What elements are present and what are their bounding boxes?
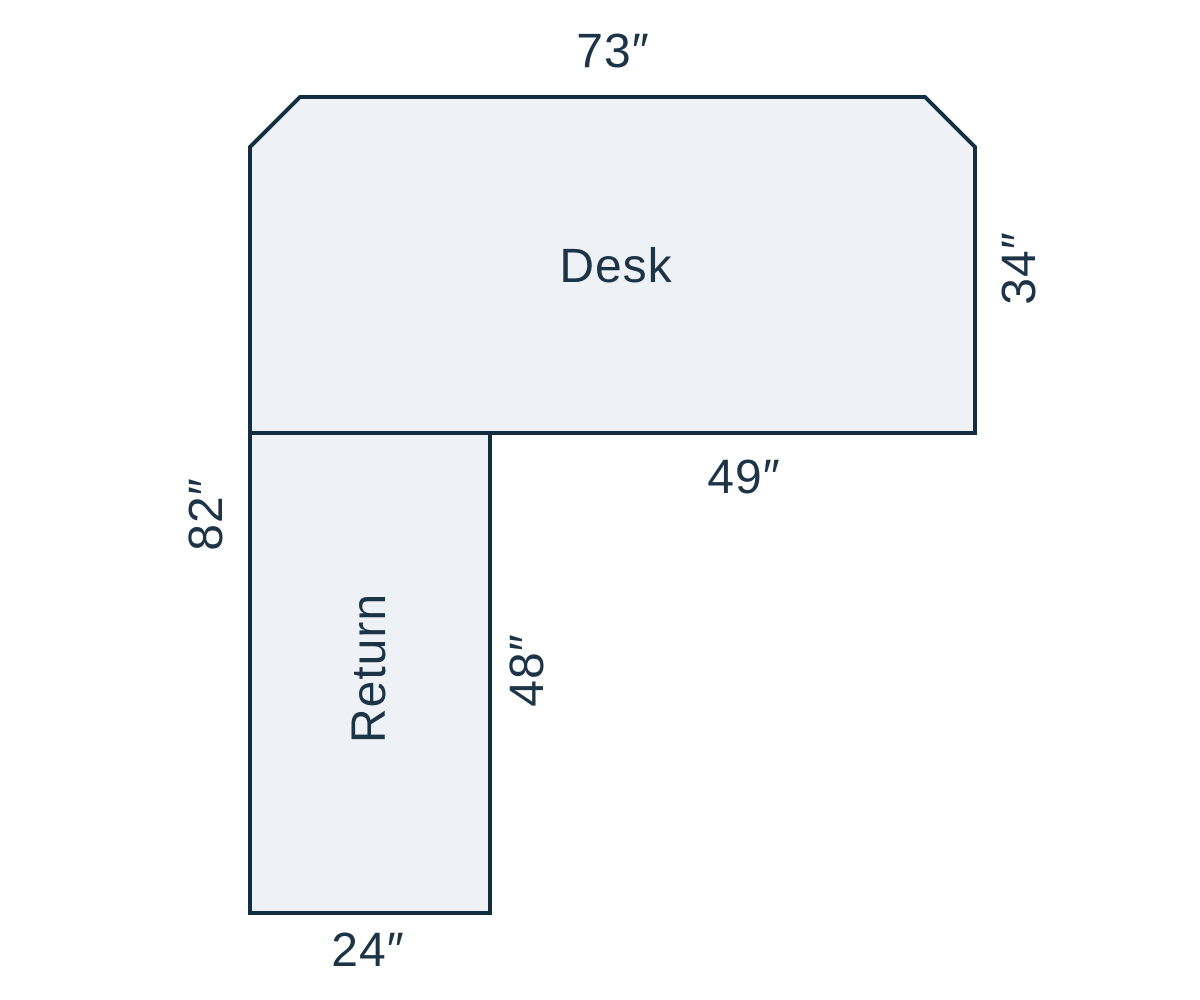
- dimension-desk-bottom-right-span: 49″: [707, 454, 780, 502]
- dimension-total-left-height: 82″: [183, 477, 231, 550]
- dimension-return-bottom-width: 24″: [331, 927, 404, 975]
- dimension-return-inner-height: 48″: [504, 633, 552, 706]
- desk-layout-diagram: 73″ Desk 34″ 49″ 82″ Return 48″ 24″: [0, 0, 1200, 1000]
- dimension-desk-top-width: 73″: [576, 28, 649, 76]
- desk-label: Desk: [559, 243, 672, 291]
- return-label: Return: [346, 593, 394, 743]
- dimension-desk-right-depth: 34″: [996, 231, 1044, 304]
